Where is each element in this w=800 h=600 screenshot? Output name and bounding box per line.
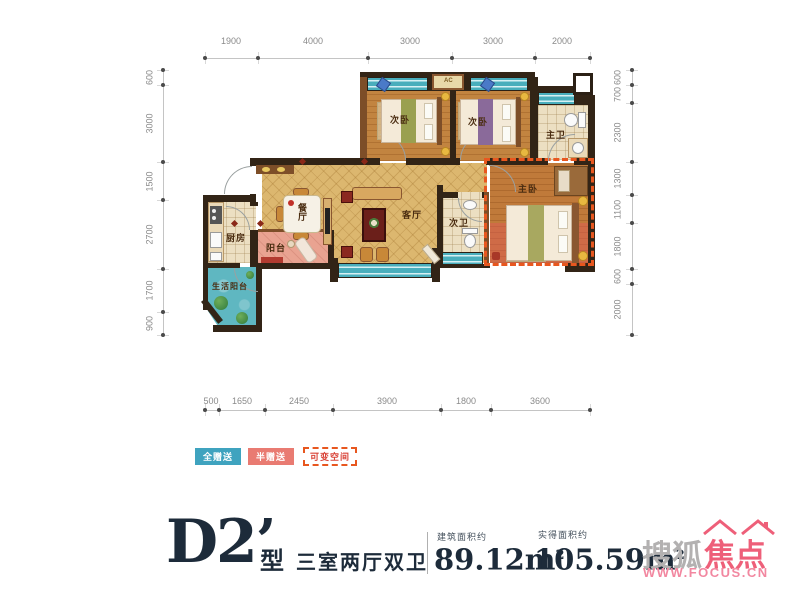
wall	[406, 158, 460, 165]
dim-label: 600	[145, 58, 156, 98]
room-label-dining: 餐厅	[296, 203, 309, 221]
plan-type-suffix: 型	[260, 541, 284, 576]
decor-item	[492, 252, 500, 260]
wall	[443, 192, 458, 198]
dim-tick	[217, 408, 221, 412]
dim-tick	[630, 160, 634, 164]
dim-tick	[588, 56, 592, 60]
dim-label: 1900	[211, 36, 251, 47]
dim-tick	[203, 56, 207, 60]
bed-pillow	[502, 104, 511, 120]
wall	[256, 263, 338, 269]
room-label-living: 客厅	[402, 208, 422, 221]
legend-full-gift: 全赠送	[195, 448, 241, 465]
dim-tick	[439, 408, 443, 412]
window-master-bath	[538, 92, 575, 105]
tea-set	[369, 218, 379, 228]
dim-line	[632, 70, 633, 335]
window-living	[338, 263, 432, 278]
entry-door-arc	[224, 166, 252, 194]
wall	[250, 202, 258, 206]
room-label-utility-balcony: 生活阳台	[212, 281, 248, 292]
dim-label: 1650	[222, 396, 262, 407]
fruit-bowl	[288, 200, 294, 206]
dim-tick	[630, 68, 634, 72]
floor-plan-image: 1900 4000 3000 3000 2000 500 1650 2450 3…	[0, 0, 800, 600]
plant	[246, 271, 254, 279]
room-label-kitchen: 厨房	[226, 231, 246, 244]
usable-area-label: 实得面积约	[538, 528, 588, 541]
wall	[213, 325, 262, 332]
dim-tick	[630, 221, 634, 225]
dim-tick	[450, 56, 454, 60]
dim-tick	[203, 408, 207, 412]
dim-tick	[630, 333, 634, 337]
wall	[330, 258, 338, 282]
flue-shaft	[573, 73, 593, 95]
nightstand	[578, 196, 588, 206]
dim-label: 3000	[473, 36, 513, 47]
side-table	[287, 240, 295, 248]
dim-tick	[161, 267, 165, 271]
bed-pillow	[502, 126, 511, 142]
stove-burner	[212, 209, 216, 213]
dim-tick	[630, 83, 634, 87]
armchair	[360, 247, 373, 262]
plant	[214, 296, 228, 310]
cabinet-dish	[277, 167, 285, 172]
flower-box	[261, 257, 283, 263]
dim-tick	[161, 198, 165, 202]
plan-code: D2’	[166, 512, 275, 572]
dim-label: 2000	[613, 290, 624, 330]
dim-tick	[161, 83, 165, 87]
dim-tick	[630, 193, 634, 197]
dim-tick	[161, 333, 165, 337]
dim-label: 2700	[145, 215, 156, 255]
dim-label: 1100	[613, 190, 624, 230]
room-label-master-bedroom: 主卧	[518, 182, 538, 195]
wall	[203, 195, 256, 202]
dim-tick	[161, 160, 165, 164]
dim-label: 2450	[279, 396, 319, 407]
nightstand	[578, 251, 588, 261]
wall	[360, 77, 367, 163]
dim-tick	[256, 56, 260, 60]
dim-tick	[588, 408, 592, 412]
kitchen-sink	[210, 232, 222, 248]
dim-tick	[630, 101, 634, 105]
dim-label: 3900	[367, 396, 407, 407]
dim-label: 700	[613, 75, 624, 115]
wall	[250, 158, 256, 166]
wall	[536, 86, 577, 92]
plant	[236, 312, 248, 324]
dim-label: 3600	[520, 396, 560, 407]
cabinet-dish	[262, 167, 270, 172]
legend-half-gift: 半赠送	[248, 448, 294, 465]
dim-label: 1800	[446, 396, 486, 407]
armchair	[376, 247, 389, 262]
dim-label: 1500	[145, 162, 156, 202]
nightstand	[441, 92, 450, 101]
dim-label: 2000	[542, 36, 582, 47]
toilet-bowl	[464, 234, 476, 248]
basin	[463, 200, 477, 210]
side-table	[341, 191, 353, 203]
toilet-tank	[578, 112, 586, 128]
watermark-url: WWW.FOCUS.CN	[643, 565, 769, 580]
wall	[250, 230, 258, 267]
dim-label: 4000	[293, 36, 333, 47]
dim-tick	[331, 408, 335, 412]
sofa	[352, 187, 402, 200]
dim-tick	[366, 56, 370, 60]
dim-tick	[161, 310, 165, 314]
dim-tick	[630, 282, 634, 286]
dim-label: 900	[145, 304, 156, 344]
wardrobe-panel	[558, 170, 570, 192]
washing-machine	[210, 252, 222, 261]
stove-burner	[212, 216, 216, 220]
dim-tick	[533, 56, 537, 60]
dim-tick	[263, 408, 267, 412]
tv	[325, 208, 330, 234]
dim-line	[163, 70, 164, 335]
dim-tick	[489, 408, 493, 412]
bed-headboard	[516, 97, 521, 147]
room-label-master-bath: 主卫	[546, 128, 566, 141]
footer-divider	[427, 532, 428, 574]
room-label-bedroom-a: 次卧	[390, 113, 410, 126]
dim-tick	[161, 68, 165, 72]
dim-label: 2300	[613, 113, 624, 153]
toilet-bowl	[564, 113, 578, 127]
bed-headboard	[437, 97, 442, 145]
bed-pillow	[558, 211, 568, 229]
bed-pillow	[558, 235, 568, 253]
dim-label: 3000	[145, 104, 156, 144]
room-label-bedroom-b: 次卧	[468, 115, 488, 128]
bed-pillow	[424, 103, 433, 119]
dim-label: 3000	[390, 36, 430, 47]
basin	[572, 142, 584, 154]
bed-blanket	[528, 205, 544, 261]
nightstand	[520, 148, 529, 157]
dim-tick	[630, 267, 634, 271]
room-label-balcony: 阳台	[266, 241, 286, 254]
side-table	[341, 246, 353, 258]
wall	[360, 72, 437, 77]
ac-label: AC	[444, 78, 453, 84]
bay-window-bedroom-b	[470, 77, 528, 91]
legend-variable-space: 可变空间	[303, 447, 357, 466]
room-label-second-bath: 次卫	[449, 216, 469, 229]
bed-pillow	[424, 124, 433, 140]
nightstand	[441, 147, 450, 156]
layout-description: 三室两厅双卫	[296, 546, 428, 575]
wall	[437, 264, 490, 268]
nightstand	[520, 92, 529, 101]
